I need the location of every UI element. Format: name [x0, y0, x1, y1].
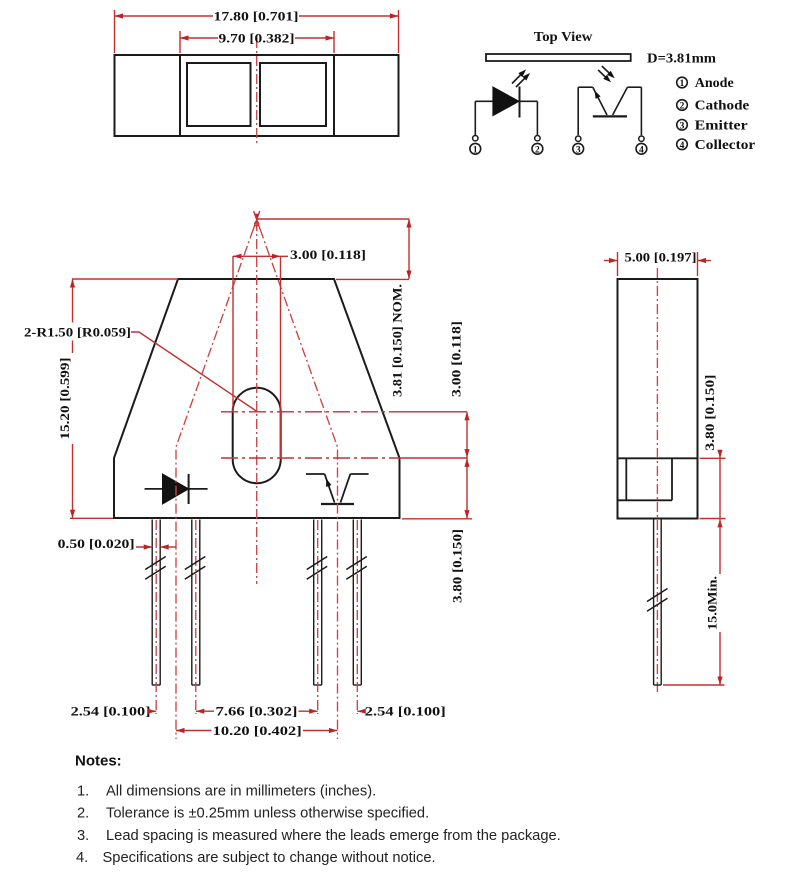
svg-text:2.54 [0.100]: 2.54 [0.100] [365, 704, 446, 719]
svg-text:All dimensions are in millimet: All dimensions are in millimeters (inche… [106, 784, 376, 800]
svg-text:Top View: Top View [534, 30, 593, 45]
svg-text:17.80 [0.701]: 17.80 [0.701] [214, 9, 299, 24]
svg-text:3.00 [0.118]: 3.00 [0.118] [290, 247, 366, 262]
svg-text:2-R1.50 [R0.059]: 2-R1.50 [R0.059] [24, 325, 131, 340]
svg-text:3.81 [0.150] NOM.: 3.81 [0.150] NOM. [390, 284, 405, 397]
svg-text:1: 1 [680, 79, 685, 89]
svg-text:4: 4 [680, 141, 685, 151]
svg-text:3: 3 [576, 146, 581, 156]
svg-text:Lead spacing is measured where: Lead spacing is measured where the leads… [106, 828, 561, 844]
svg-text:Collector: Collector [695, 138, 756, 153]
svg-text:Tolerance is ±0.25mm unless ot: Tolerance is ±0.25mm unless otherwise sp… [106, 806, 429, 822]
svg-text:Emitter: Emitter [695, 118, 748, 133]
svg-text:2.: 2. [77, 806, 89, 822]
svg-text:3: 3 [680, 122, 685, 132]
svg-text:15.0Min.: 15.0Min. [705, 576, 720, 630]
svg-text:Anode: Anode [695, 76, 734, 91]
svg-text:3.80 [0.150]: 3.80 [0.150] [449, 529, 464, 603]
svg-text:9.70 [0.382]: 9.70 [0.382] [219, 31, 295, 46]
svg-text:1: 1 [473, 146, 478, 156]
svg-text:Notes:: Notes: [75, 753, 122, 770]
svg-text:5.00 [0.197]: 5.00 [0.197] [625, 249, 697, 264]
svg-text:2: 2 [535, 146, 540, 156]
svg-text:7.66 [0.302]: 7.66 [0.302] [216, 704, 298, 719]
svg-text:2.54 [0.100]: 2.54 [0.100] [71, 704, 151, 719]
svg-text:1.: 1. [77, 784, 89, 800]
svg-text:D=3.81mm: D=3.81mm [647, 52, 716, 67]
svg-text:4.: 4. [76, 850, 88, 866]
svg-text:0.50 [0.020]: 0.50 [0.020] [58, 536, 135, 551]
svg-text:3.00 [0.118]: 3.00 [0.118] [449, 321, 464, 397]
svg-text:Specifications are subject to: Specifications are subject to change wit… [103, 850, 436, 866]
svg-text:2: 2 [680, 102, 685, 112]
svg-text:15.20 [0.599]: 15.20 [0.599] [57, 358, 72, 440]
svg-text:3.80 [0.150]: 3.80 [0.150] [702, 375, 717, 451]
svg-text:4: 4 [639, 146, 644, 156]
svg-text:3.: 3. [77, 828, 89, 844]
svg-text:10.20 [0.402]: 10.20 [0.402] [213, 723, 302, 738]
svg-text:Cathode: Cathode [695, 99, 750, 114]
